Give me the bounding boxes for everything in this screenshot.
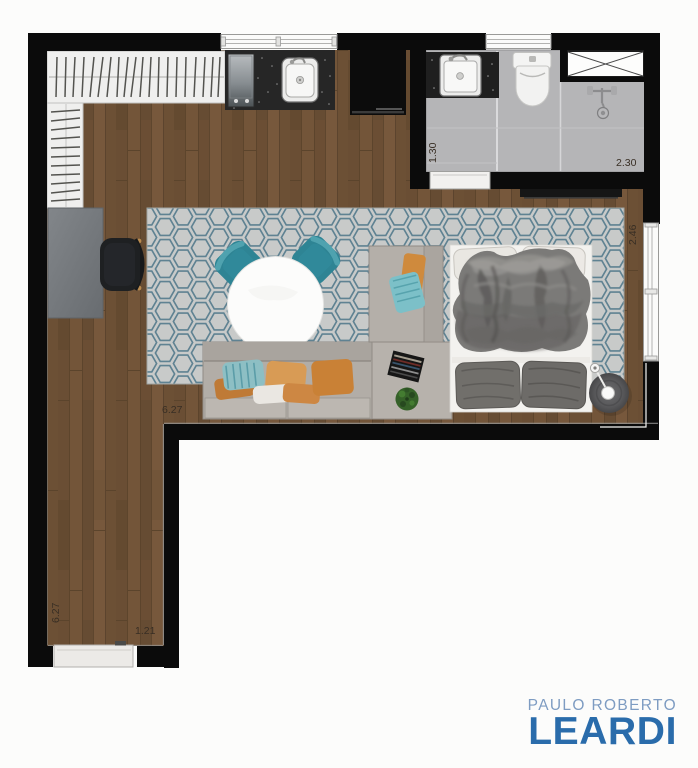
svg-text:1.21: 1.21 bbox=[135, 625, 156, 637]
svg-text:6.27: 6.27 bbox=[50, 602, 62, 623]
svg-text:LEARDI: LEARDI bbox=[528, 710, 677, 753]
svg-text:2.46: 2.46 bbox=[627, 224, 639, 245]
svg-text:6.27: 6.27 bbox=[162, 404, 183, 416]
svg-text:1.30: 1.30 bbox=[427, 142, 439, 163]
svg-text:2.30: 2.30 bbox=[616, 157, 637, 169]
